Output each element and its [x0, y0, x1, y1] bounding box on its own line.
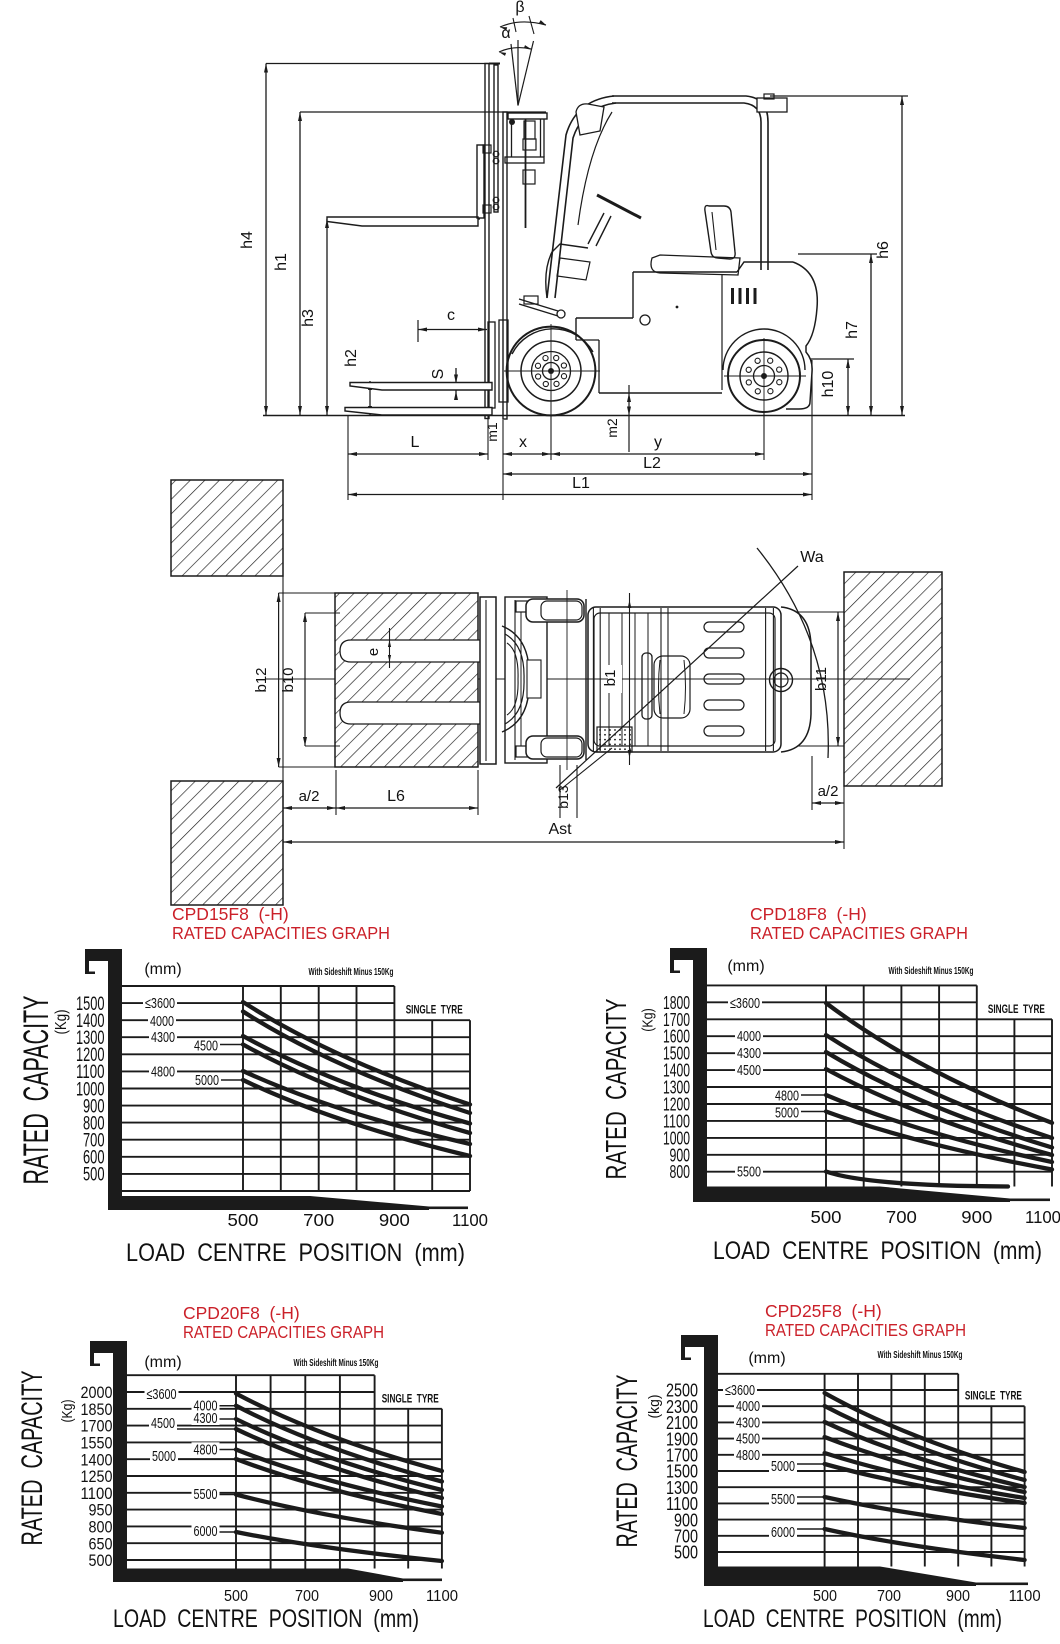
svg-text:(Kg): (Kg) — [59, 1400, 76, 1423]
svg-text:4500: 4500 — [736, 1432, 760, 1448]
svg-text:500: 500 — [83, 1165, 105, 1186]
svg-text:RATED CAPACITIES GRAPH: RATED CAPACITIES GRAPH — [172, 923, 390, 943]
svg-text:(mm): (mm) — [144, 1354, 181, 1371]
svg-text:LOAD CENTRE POSITION (mm): LOAD CENTRE POSITION (mm) — [703, 1605, 1002, 1633]
svg-text:LOAD CENTRE POSITION (mm): LOAD CENTRE POSITION (mm) — [126, 1239, 465, 1267]
svg-text:5000: 5000 — [152, 1449, 176, 1465]
svg-text:LOAD CENTRE POSITION (mm): LOAD CENTRE POSITION (mm) — [113, 1605, 419, 1633]
svg-text:4000: 4000 — [150, 1014, 174, 1030]
svg-text:b12: b12 — [253, 667, 270, 692]
svg-text:4300: 4300 — [737, 1046, 761, 1062]
svg-text:5500: 5500 — [737, 1165, 761, 1181]
svg-text:4500: 4500 — [737, 1063, 761, 1079]
svg-text:4800: 4800 — [151, 1065, 175, 1081]
svg-text:500: 500 — [89, 1551, 113, 1570]
svg-text:900: 900 — [946, 1588, 970, 1605]
svg-text:RATED CAPACITIES GRAPH: RATED CAPACITIES GRAPH — [183, 1322, 384, 1342]
svg-text:≤3600: ≤3600 — [145, 996, 175, 1012]
svg-text:LOAD CENTRE POSITION (mm): LOAD CENTRE POSITION (mm) — [713, 1237, 1042, 1265]
svg-text:1100: 1100 — [1025, 1207, 1060, 1227]
svg-text:h4: h4 — [239, 231, 256, 249]
svg-text:SINGLE TYRE: SINGLE TYRE — [988, 1004, 1045, 1016]
svg-text:RATED CAPACITY: RATED CAPACITY — [611, 1375, 644, 1548]
svg-text:4500: 4500 — [194, 1039, 218, 1055]
svg-text:900: 900 — [961, 1207, 992, 1227]
svg-text:≤3600: ≤3600 — [725, 1383, 755, 1399]
svg-text:With Sideshift Minus 150Kg: With Sideshift Minus 150Kg — [309, 967, 394, 978]
svg-text:L6: L6 — [387, 788, 405, 805]
svg-text:h3: h3 — [300, 309, 317, 327]
svg-text:β: β — [515, 0, 524, 16]
svg-text:4500: 4500 — [151, 1416, 175, 1432]
svg-text:CPD15F8 (-H): CPD15F8 (-H) — [172, 904, 289, 924]
svg-text:h6: h6 — [875, 241, 892, 259]
svg-text:e: e — [365, 648, 382, 656]
svg-text:a/2: a/2 — [299, 788, 320, 805]
svg-text:With Sideshift Minus 150Kg: With Sideshift Minus 150Kg — [294, 1358, 379, 1369]
svg-text:b1: b1 — [602, 670, 619, 687]
svg-text:RATED CAPACITIES GRAPH: RATED CAPACITIES GRAPH — [750, 923, 968, 943]
svg-text:500: 500 — [813, 1588, 837, 1605]
svg-text:≤3600: ≤3600 — [730, 996, 760, 1012]
svg-text:4300: 4300 — [194, 1411, 218, 1427]
svg-text:x: x — [519, 434, 527, 451]
svg-text:Ast: Ast — [548, 821, 572, 838]
svg-text:4800: 4800 — [194, 1442, 218, 1458]
svg-text:(mm): (mm) — [727, 958, 764, 975]
svg-text:(mm): (mm) — [144, 961, 181, 978]
svg-text:RATED CAPACITY: RATED CAPACITY — [16, 1371, 49, 1546]
svg-text:1100: 1100 — [1009, 1588, 1041, 1605]
svg-text:L: L — [411, 434, 420, 451]
svg-text:500: 500 — [674, 1542, 698, 1563]
svg-text:800: 800 — [670, 1162, 691, 1182]
svg-text:4800: 4800 — [775, 1089, 799, 1105]
svg-text:With Sideshift Minus 150Kg: With Sideshift Minus 150Kg — [889, 966, 974, 977]
svg-text:500: 500 — [811, 1207, 842, 1227]
svg-text:RATED CAPACITY: RATED CAPACITY — [601, 999, 633, 1180]
svg-text:With Sideshift Minus 150Kg: With Sideshift Minus 150Kg — [878, 1350, 963, 1361]
svg-text:h10: h10 — [820, 371, 837, 398]
svg-text:500: 500 — [224, 1588, 248, 1605]
svg-text:6000: 6000 — [194, 1524, 218, 1540]
svg-text:700: 700 — [303, 1210, 334, 1230]
svg-text:h2: h2 — [343, 349, 360, 367]
svg-text:5500: 5500 — [194, 1487, 218, 1503]
svg-text:4300: 4300 — [736, 1415, 760, 1431]
svg-text:500: 500 — [228, 1210, 259, 1230]
svg-text:h1: h1 — [273, 253, 290, 271]
svg-text:c: c — [447, 307, 455, 324]
svg-text:L1: L1 — [572, 475, 590, 492]
svg-text:Wa: Wa — [800, 549, 824, 566]
svg-text:6000: 6000 — [771, 1525, 795, 1541]
svg-text:m2: m2 — [604, 418, 620, 438]
svg-text:4000: 4000 — [737, 1029, 761, 1045]
svg-text:S: S — [430, 369, 447, 380]
svg-text:5500: 5500 — [771, 1492, 795, 1508]
svg-text:1100: 1100 — [426, 1588, 458, 1605]
svg-text:(Kg): (Kg) — [640, 1008, 657, 1032]
svg-text:5000: 5000 — [771, 1459, 795, 1475]
svg-text:L2: L2 — [643, 455, 661, 472]
svg-text:RATED CAPACITIES GRAPH: RATED CAPACITIES GRAPH — [765, 1320, 966, 1340]
svg-text:4000: 4000 — [736, 1399, 760, 1415]
svg-text:900: 900 — [379, 1210, 410, 1230]
svg-text:5000: 5000 — [775, 1105, 799, 1121]
svg-text:4300: 4300 — [151, 1030, 175, 1046]
svg-text:≤3600: ≤3600 — [147, 1387, 177, 1403]
svg-text:α: α — [501, 25, 510, 42]
svg-text:700: 700 — [295, 1588, 319, 1605]
svg-text:5000: 5000 — [195, 1073, 219, 1089]
svg-text:m1: m1 — [484, 422, 500, 442]
svg-text:CPD25F8 (-H): CPD25F8 (-H) — [765, 1301, 882, 1321]
svg-text:(mm): (mm) — [748, 1350, 785, 1367]
svg-text:700: 700 — [877, 1588, 901, 1605]
svg-text:SINGLE TYRE: SINGLE TYRE — [382, 1393, 439, 1405]
svg-text:RATED CAPACITY: RATED CAPACITY — [17, 996, 56, 1185]
svg-text:CPD18F8 (-H): CPD18F8 (-H) — [750, 904, 867, 924]
svg-text:y: y — [654, 434, 662, 451]
svg-text:700: 700 — [886, 1207, 917, 1227]
svg-text:900: 900 — [369, 1588, 393, 1605]
svg-text:a/2: a/2 — [818, 783, 839, 800]
svg-text:4800: 4800 — [736, 1448, 760, 1464]
svg-text:h7: h7 — [844, 321, 861, 339]
svg-text:b13: b13 — [555, 785, 571, 809]
svg-text:SINGLE TYRE: SINGLE TYRE — [406, 1005, 463, 1017]
svg-text:(Kg): (Kg) — [53, 1010, 70, 1035]
svg-text:(kg): (kg) — [646, 1395, 663, 1419]
svg-text:1100: 1100 — [452, 1210, 488, 1230]
svg-text:CPD20F8 (-H): CPD20F8 (-H) — [183, 1303, 300, 1323]
svg-text:SINGLE TYRE: SINGLE TYRE — [965, 1391, 1022, 1403]
